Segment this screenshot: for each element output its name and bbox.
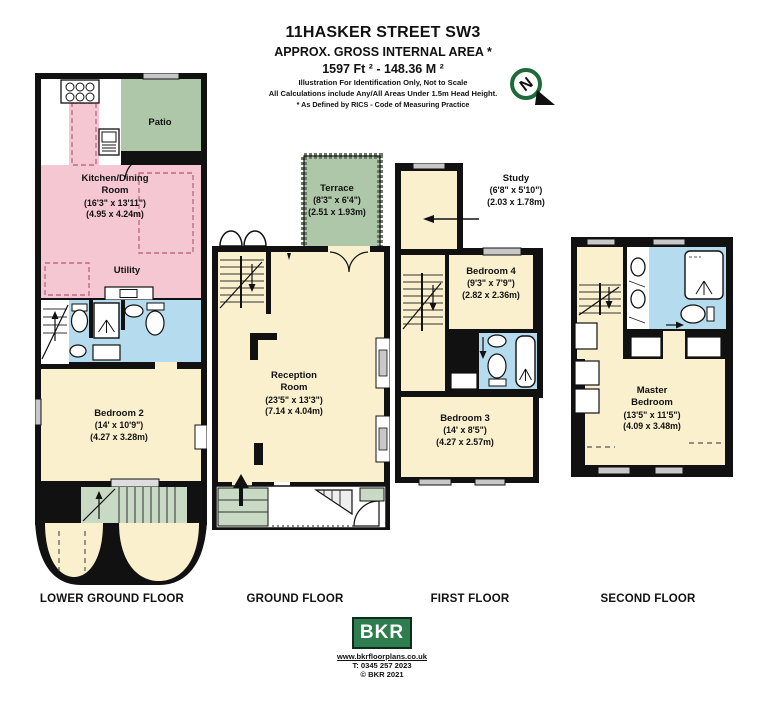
closet-area xyxy=(687,337,721,357)
first-floor-plan: Study (6'8" x 5'10") (2.03 x 1.78m) Bedr… xyxy=(395,163,555,488)
basin-icon xyxy=(631,290,645,308)
copyright-text: © BKR 2021 xyxy=(282,670,482,679)
phone-number: T: 0345 257 2023 xyxy=(282,661,482,670)
floorplan-page: { "header": { "title": "11HASKER STREET … xyxy=(0,0,760,711)
kitchen-sink-icon xyxy=(99,129,119,155)
bedroom3-area xyxy=(401,397,533,477)
basin-icon xyxy=(488,335,506,347)
second-floor-label: SECOND FLOOR xyxy=(553,593,743,605)
first-floor-label: FIRST FLOOR xyxy=(375,593,565,605)
ground-floor-plan: Terrace (8'3" x 6'4") (2.51 x 1.93m) Rec… xyxy=(212,150,390,532)
vanity-sinks-area xyxy=(627,247,649,329)
stove-icon xyxy=(61,80,99,103)
ground-floor-label: GROUND FLOOR xyxy=(200,593,390,605)
first-floor-drawing xyxy=(395,163,555,488)
ground-floor-drawing xyxy=(212,150,390,532)
shower-icon xyxy=(94,303,119,338)
lower-ground-floor-drawing xyxy=(35,73,207,588)
basin-icon xyxy=(70,345,86,357)
bathtub-icon xyxy=(516,336,535,387)
basin-icon xyxy=(631,258,645,276)
second-floor-plan: Master Bedroom (13'5" x 11'5") (4.09 x 3… xyxy=(571,237,733,477)
terrace-area xyxy=(304,156,380,252)
bkr-logo: BKR xyxy=(352,617,412,649)
bedroom2-area xyxy=(35,362,207,481)
toilet-icon xyxy=(681,305,714,323)
shower-icon xyxy=(685,251,723,299)
bedroom4-area xyxy=(449,255,533,329)
closet-area xyxy=(631,337,661,357)
patio-area xyxy=(121,73,201,151)
lower-ground-floor-plan: Patio Kitchen/Dining Room (16'3" x 13'11… xyxy=(35,73,207,588)
website-link: www.bkrfloorplans.co.uk xyxy=(282,652,482,661)
sf-bathroom-area xyxy=(649,247,726,329)
basin-icon xyxy=(125,305,143,317)
lgf-bathroom-area xyxy=(69,300,201,362)
lower-ground-floor-label: LOWER GROUND FLOOR xyxy=(17,593,207,605)
compass-north-icon: N xyxy=(502,62,562,112)
toilet-icon xyxy=(146,311,164,335)
study-area xyxy=(401,171,457,249)
bay-window-arcs xyxy=(220,231,266,246)
ff-bathroom-area xyxy=(479,333,537,389)
reception-room-area xyxy=(218,252,384,482)
utility-sink-icon xyxy=(105,287,153,300)
closet-area xyxy=(451,373,477,389)
header-subtitle: APPROX. GROSS INTERNAL AREA * xyxy=(103,45,663,59)
toilet-icon xyxy=(488,354,506,378)
second-floor-drawing xyxy=(571,237,733,477)
page-title: 11HASKER STREET SW3 xyxy=(103,24,663,42)
toilet-icon xyxy=(72,310,88,332)
lgf-stairs-up-icon xyxy=(41,300,69,364)
